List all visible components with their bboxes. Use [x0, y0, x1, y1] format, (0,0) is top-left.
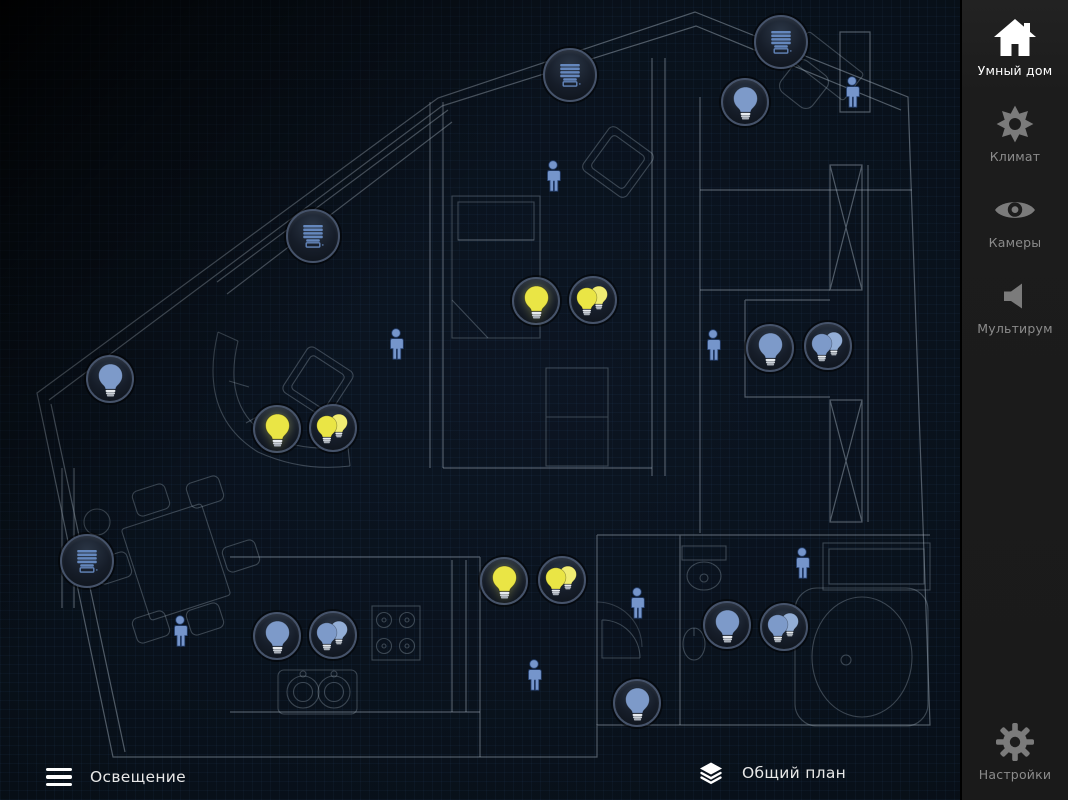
- speaker-icon: [962, 274, 1068, 318]
- home-icon: [962, 16, 1068, 60]
- sidebar-item-label: Настройки: [962, 767, 1068, 782]
- layers-icon: [698, 760, 724, 786]
- presence-indicator: [169, 615, 191, 651]
- sidebar-item-label: Умный дом: [962, 63, 1068, 78]
- presence-indicator: [702, 329, 724, 365]
- light-control[interactable]: [703, 601, 751, 649]
- lighting-menu-button[interactable]: Освещение: [46, 768, 186, 786]
- light-control[interactable]: [512, 277, 560, 325]
- sidebar-item-cameras[interactable]: Камеры: [962, 188, 1068, 250]
- light-control[interactable]: [86, 355, 134, 403]
- gear-icon: [962, 720, 1068, 764]
- plan-selector-button[interactable]: Общий план: [698, 760, 846, 786]
- blinds-control[interactable]: [754, 15, 808, 69]
- sidebar-item-settings[interactable]: Настройки: [962, 720, 1068, 782]
- light-group-control[interactable]: [538, 556, 586, 604]
- plan-selector-label: Общий план: [742, 764, 846, 782]
- sidebar-item-label: Климат: [962, 149, 1068, 164]
- hamburger-icon: [46, 768, 72, 786]
- sidebar-item-multiroom[interactable]: Мультирум: [962, 274, 1068, 336]
- presence-indicator: [841, 76, 863, 112]
- blinds-control[interactable]: [286, 209, 340, 263]
- light-group-control[interactable]: [309, 611, 357, 659]
- lighting-menu-label: Освещение: [90, 768, 186, 786]
- sun-icon: [962, 102, 1068, 146]
- sidebar-item-smart-home[interactable]: Умный дом: [962, 16, 1068, 78]
- sidebar-item-climate[interactable]: Климат: [962, 102, 1068, 164]
- light-group-control[interactable]: [760, 603, 808, 651]
- smart-home-app: Освещение Общий план Умный дом: [0, 0, 1068, 800]
- light-control[interactable]: [721, 78, 769, 126]
- light-group-control[interactable]: [804, 322, 852, 370]
- eye-icon: [962, 188, 1068, 232]
- blinds-control[interactable]: [60, 534, 114, 588]
- sidebar-item-label: Камеры: [962, 235, 1068, 250]
- sidebar-item-label: Мультирум: [962, 321, 1068, 336]
- light-control[interactable]: [253, 405, 301, 453]
- light-control[interactable]: [480, 557, 528, 605]
- presence-indicator: [626, 587, 648, 623]
- sidebar: Умный дом Клим: [960, 0, 1068, 800]
- floor-plan-area: Освещение Общий план: [0, 0, 960, 800]
- presence-indicator: [542, 160, 564, 196]
- light-control[interactable]: [253, 612, 301, 660]
- presence-indicator: [523, 659, 545, 695]
- device-layer: [0, 0, 960, 800]
- presence-indicator: [791, 547, 813, 583]
- blinds-control[interactable]: [543, 48, 597, 102]
- presence-indicator: [385, 328, 407, 364]
- light-group-control[interactable]: [309, 404, 357, 452]
- light-group-control[interactable]: [569, 276, 617, 324]
- light-control[interactable]: [613, 679, 661, 727]
- light-control[interactable]: [746, 324, 794, 372]
